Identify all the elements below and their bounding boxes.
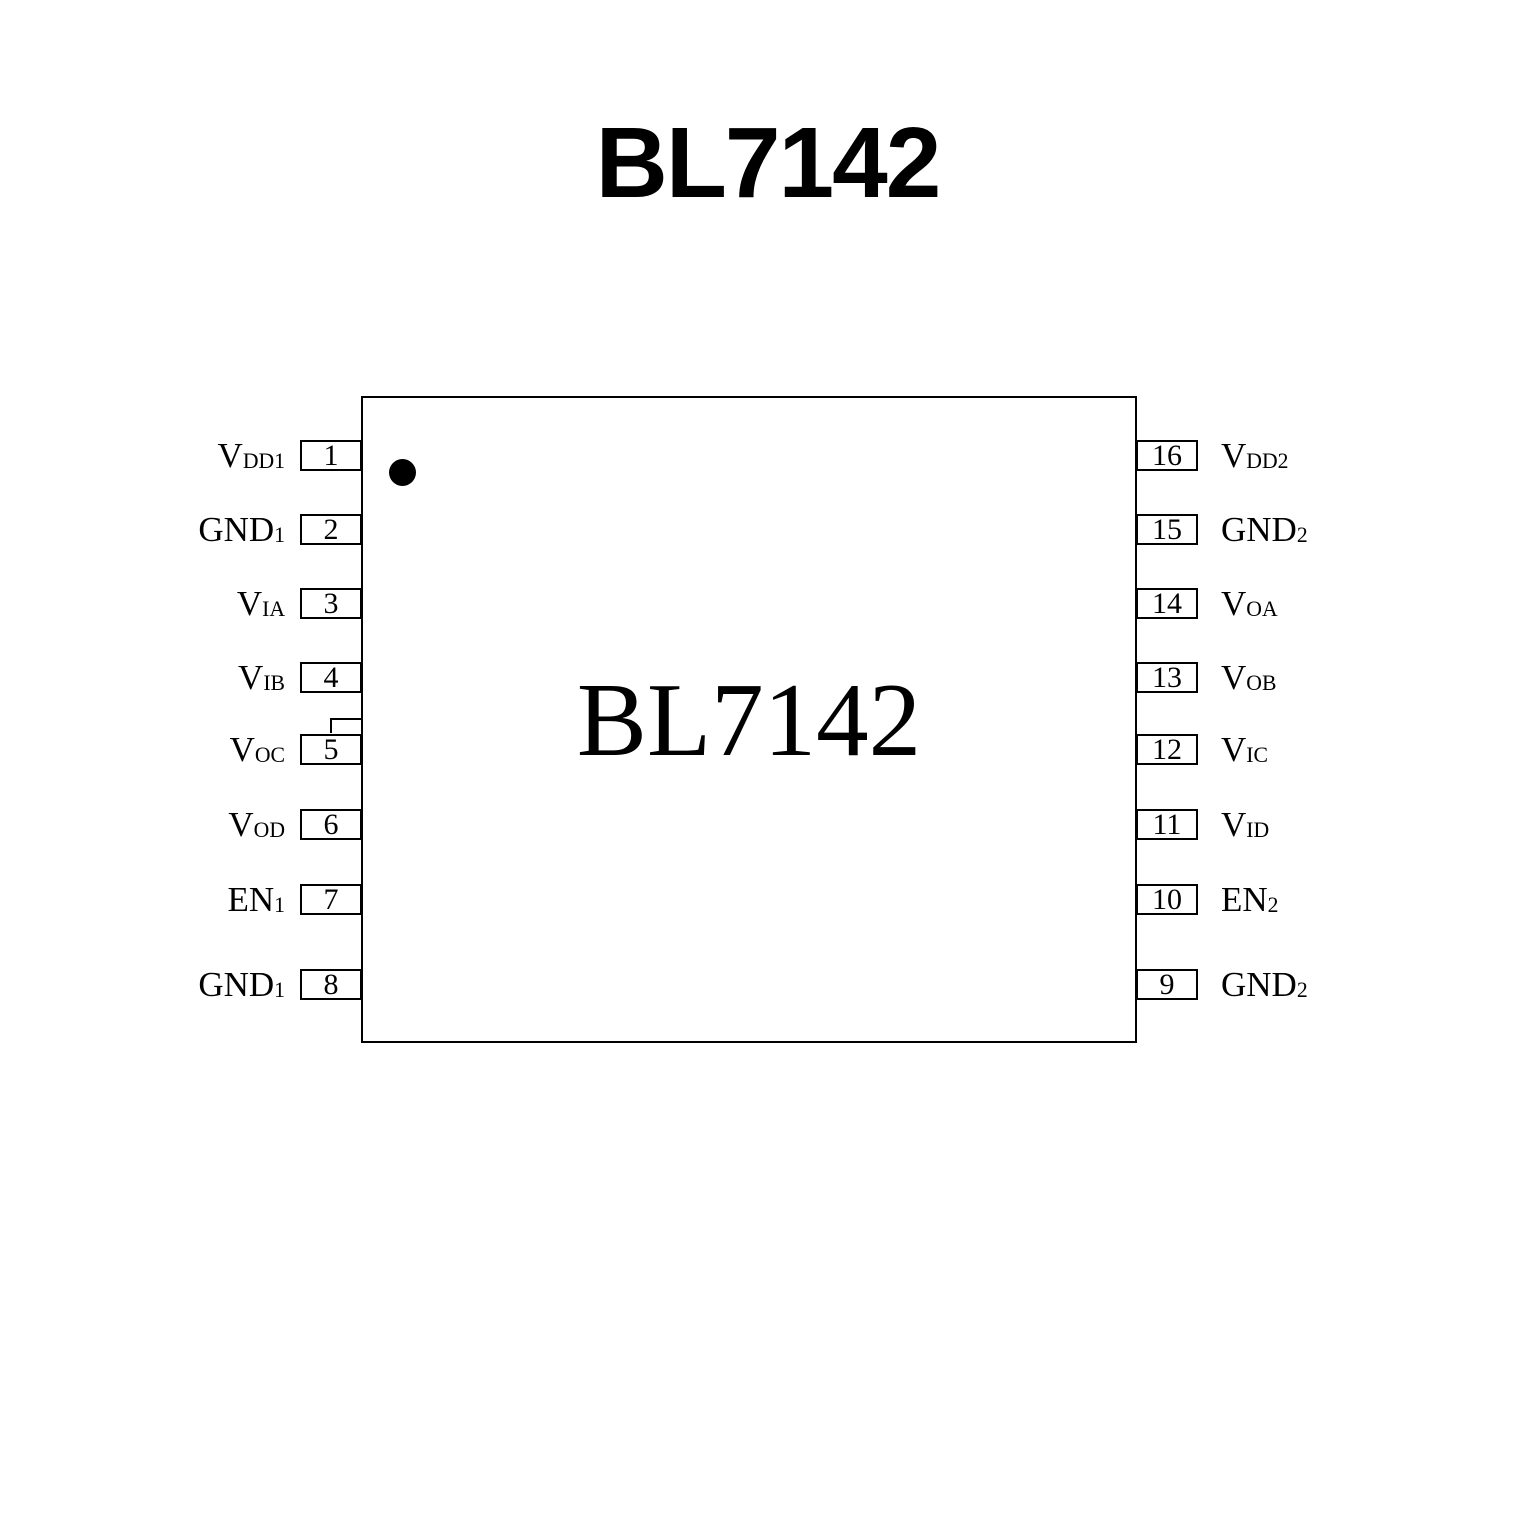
pin-4-box: 4 xyxy=(300,662,362,693)
pin-7-label-sub: 1 xyxy=(274,895,285,917)
pin-11-number: 11 xyxy=(1153,810,1182,840)
pin-16-label-sub: DD2 xyxy=(1246,451,1288,473)
pin-16-box: 16 xyxy=(1136,440,1198,471)
pin5-notch-line xyxy=(330,718,361,733)
pin-11-label-sub: ID xyxy=(1246,820,1269,842)
pin-14-label-sub: OA xyxy=(1246,599,1277,621)
pin-3-number: 3 xyxy=(324,589,339,619)
pin-9-label: GND2 xyxy=(1221,969,1501,1000)
pin-15-label: GND2 xyxy=(1221,514,1501,545)
pin-10-box: 10 xyxy=(1136,884,1198,915)
pin-11-label-base: V xyxy=(1221,807,1246,842)
pin-11-label: VID xyxy=(1221,809,1501,840)
pin-5-box: 5 xyxy=(300,734,362,765)
pin-2-label-sub: 1 xyxy=(274,525,285,547)
pin-6-label-base: V xyxy=(228,807,253,842)
pin-10-label: EN2 xyxy=(1221,884,1501,915)
pin-12-label-base: V xyxy=(1221,732,1246,767)
pin-14-label-base: V xyxy=(1221,586,1246,621)
pin-3-box: 3 xyxy=(300,588,362,619)
pin-6-label-sub: OD xyxy=(254,820,285,842)
pin-1-label-base: V xyxy=(218,438,243,473)
pin-2-label: GND1 xyxy=(40,514,285,545)
pin-6-box: 6 xyxy=(300,809,362,840)
pin-16-label-base: V xyxy=(1221,438,1246,473)
pin-9-label-base: GND xyxy=(1221,967,1297,1002)
pin-9-box: 9 xyxy=(1136,969,1198,1000)
pin-5-label: VOC xyxy=(40,734,285,765)
pin-1-number: 1 xyxy=(324,441,339,471)
pin-16-number: 16 xyxy=(1152,441,1182,471)
pin-15-box: 15 xyxy=(1136,514,1198,545)
pin-15-label-sub: 2 xyxy=(1297,525,1308,547)
pin-11-box: 11 xyxy=(1136,809,1198,840)
pin-14-number: 14 xyxy=(1152,589,1182,619)
pin-2-box: 2 xyxy=(300,514,362,545)
pin-13-number: 13 xyxy=(1152,663,1182,693)
pin-13-label: VOB xyxy=(1221,662,1501,693)
pin-1-label-sub: DD1 xyxy=(243,451,285,473)
pin-6-number: 6 xyxy=(324,810,339,840)
pin-1-box: 1 xyxy=(300,440,362,471)
pin-5-label-base: V xyxy=(230,732,255,767)
pin-8-label-base: GND xyxy=(198,967,274,1002)
pin-13-label-base: V xyxy=(1221,660,1246,695)
pin-10-label-base: EN xyxy=(1221,882,1268,917)
pin-13-label-sub: OB xyxy=(1246,673,1276,695)
pin-15-number: 15 xyxy=(1152,515,1182,545)
pin1-indicator-dot-icon xyxy=(389,459,416,486)
pin-14-label: VOA xyxy=(1221,588,1501,619)
pin-3-label-base: V xyxy=(237,586,262,621)
chip-label: BL7142 xyxy=(577,667,921,772)
pin-12-number: 12 xyxy=(1152,735,1182,765)
pin-12-box: 12 xyxy=(1136,734,1198,765)
pin-16-label: VDD2 xyxy=(1221,440,1501,471)
pin-8-label: GND1 xyxy=(40,969,285,1000)
pin-10-label-sub: 2 xyxy=(1268,895,1279,917)
pin-7-box: 7 xyxy=(300,884,362,915)
pin-4-label-sub: IB xyxy=(263,673,285,695)
page-title: BL7142 xyxy=(0,103,1535,223)
pin-9-label-sub: 2 xyxy=(1297,980,1308,1002)
pin-2-label-base: GND xyxy=(198,512,274,547)
chip-body: BL7142 xyxy=(361,396,1137,1043)
pin-8-label-sub: 1 xyxy=(274,980,285,1002)
pin-4-number: 4 xyxy=(324,663,339,693)
pin-14-box: 14 xyxy=(1136,588,1198,619)
pin-13-box: 13 xyxy=(1136,662,1198,693)
pin-7-label-base: EN xyxy=(228,882,275,917)
pin-10-number: 10 xyxy=(1152,885,1182,915)
pin-12-label-sub: IC xyxy=(1246,745,1268,767)
pin-4-label-base: V xyxy=(238,660,263,695)
pin-9-number: 9 xyxy=(1160,970,1175,1000)
pin-2-number: 2 xyxy=(324,515,339,545)
pin-12-label: VIC xyxy=(1221,734,1501,765)
pin-5-label-sub: OC xyxy=(255,745,285,767)
pin-6-label: VOD xyxy=(40,809,285,840)
pin-7-label: EN1 xyxy=(40,884,285,915)
pin-8-number: 8 xyxy=(324,970,339,1000)
pin-15-label-base: GND xyxy=(1221,512,1297,547)
pin-7-number: 7 xyxy=(324,885,339,915)
pin-8-box: 8 xyxy=(300,969,362,1000)
pin-4-label: VIB xyxy=(40,662,285,693)
pin-3-label-sub: IA xyxy=(262,599,285,621)
pin-1-label: VDD1 xyxy=(40,440,285,471)
pin-3-label: VIA xyxy=(40,588,285,619)
pinout-diagram: BL7142 BL7142 VDD1 1 GND1 2 VIA 3 VIB 4 … xyxy=(0,0,1535,1535)
pin-5-number: 5 xyxy=(324,735,339,765)
